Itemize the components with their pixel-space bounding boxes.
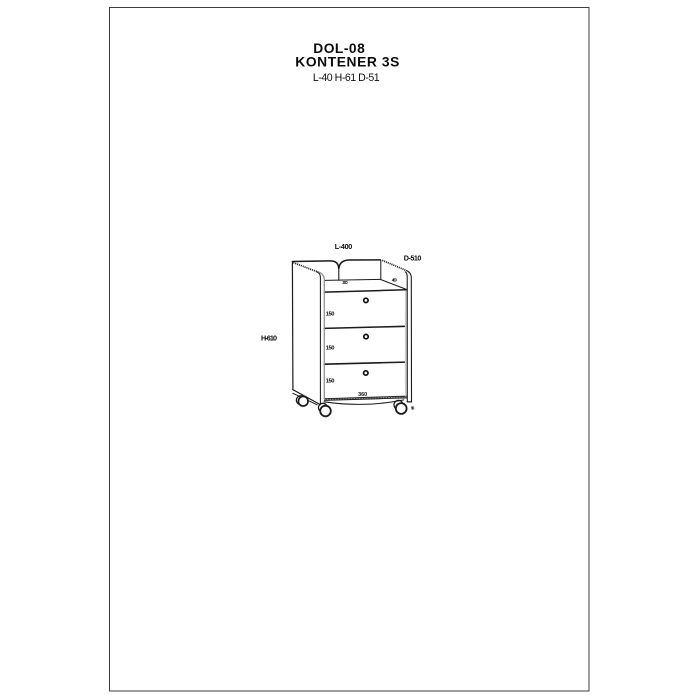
svg-text:D-510: D-510	[404, 254, 422, 263]
svg-text:450: 450	[392, 278, 398, 283]
svg-text:L-400: L-400	[335, 242, 353, 251]
svg-text:H-610: H-610	[261, 334, 277, 343]
svg-text:300: 300	[342, 280, 348, 285]
svg-text:KONTENER 3S: KONTENER 3S	[295, 55, 399, 70]
svg-text:150: 150	[326, 346, 335, 352]
svg-text:L-40 H-61 D-51: L-40 H-61 D-51	[313, 72, 380, 84]
svg-text:150: 150	[326, 311, 335, 317]
svg-text:150: 150	[326, 379, 335, 385]
